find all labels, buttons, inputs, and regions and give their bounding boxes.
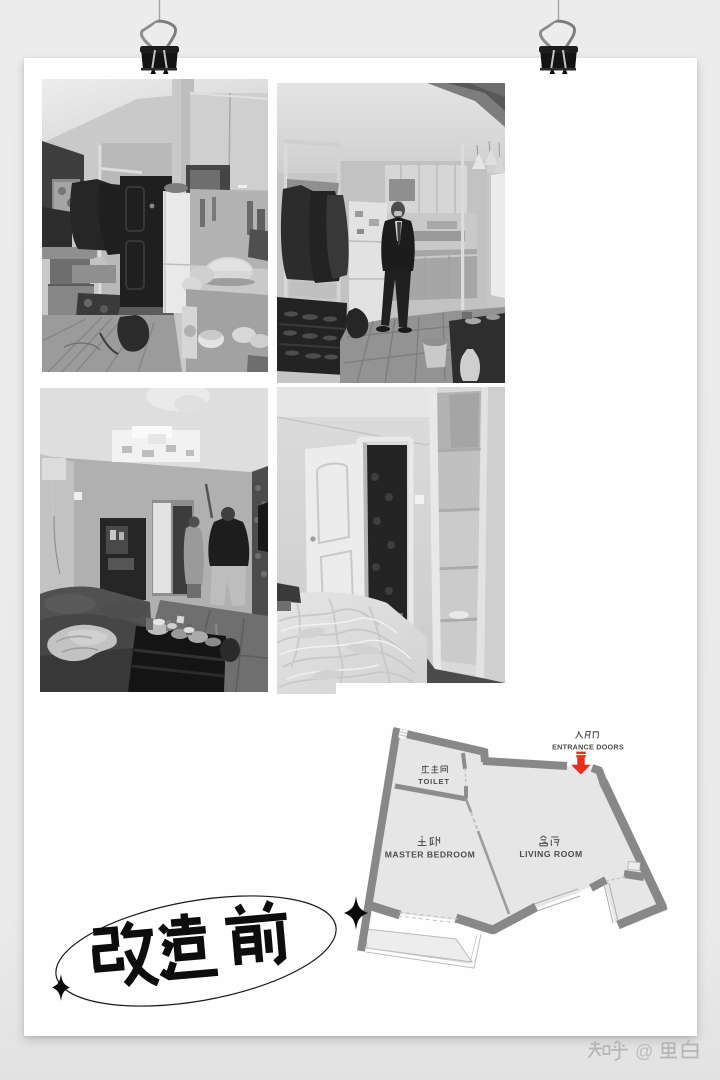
svg-text:TOILET: TOILET (418, 777, 450, 786)
svg-text:LIVING ROOM: LIVING ROOM (519, 849, 582, 859)
svg-text:@: @ (635, 1042, 653, 1062)
svg-text:ENTRANCE DOORS: ENTRANCE DOORS (552, 742, 624, 751)
svg-text:MASTER BEDROOM: MASTER BEDROOM (385, 850, 476, 860)
